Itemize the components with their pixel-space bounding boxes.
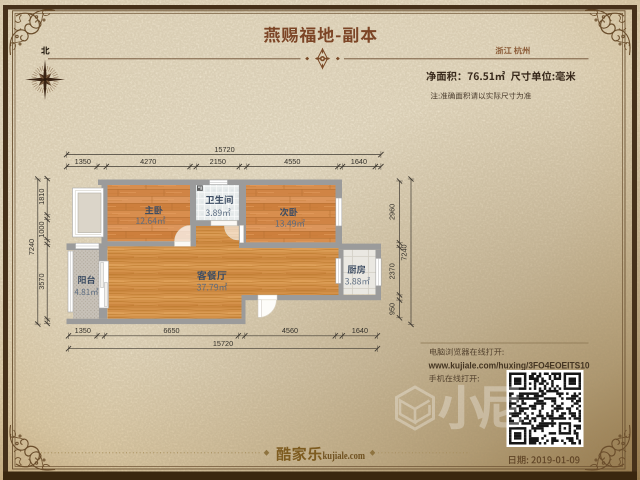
svg-text:1640: 1640	[351, 157, 367, 166]
svg-text:2150: 2150	[210, 157, 226, 166]
svg-text:kujiale.com: kujiale.com	[323, 451, 366, 462]
svg-text:15720: 15720	[213, 339, 233, 348]
svg-text:1810: 1810	[37, 189, 46, 205]
svg-text:4550: 4550	[284, 157, 300, 166]
svg-text:1350: 1350	[75, 326, 91, 335]
svg-text:1350: 1350	[75, 157, 91, 166]
svg-text:15720: 15720	[214, 145, 234, 154]
svg-text:1000: 1000	[37, 221, 46, 237]
svg-text:3570: 3570	[37, 273, 46, 289]
svg-text:7240: 7240	[27, 239, 36, 255]
svg-text:7240: 7240	[399, 244, 408, 260]
svg-text:4560: 4560	[282, 326, 298, 335]
svg-text:2370: 2370	[388, 263, 397, 279]
svg-text:6650: 6650	[163, 326, 179, 335]
svg-text:2960: 2960	[388, 204, 397, 220]
svg-text:1640: 1640	[352, 326, 368, 335]
svg-text:4270: 4270	[140, 157, 156, 166]
svg-text:950: 950	[388, 303, 397, 315]
svg-text:www.kujiale.com/huxing/3FO4EOE: www.kujiale.com/huxing/3FO4EOEITS10	[428, 360, 590, 371]
